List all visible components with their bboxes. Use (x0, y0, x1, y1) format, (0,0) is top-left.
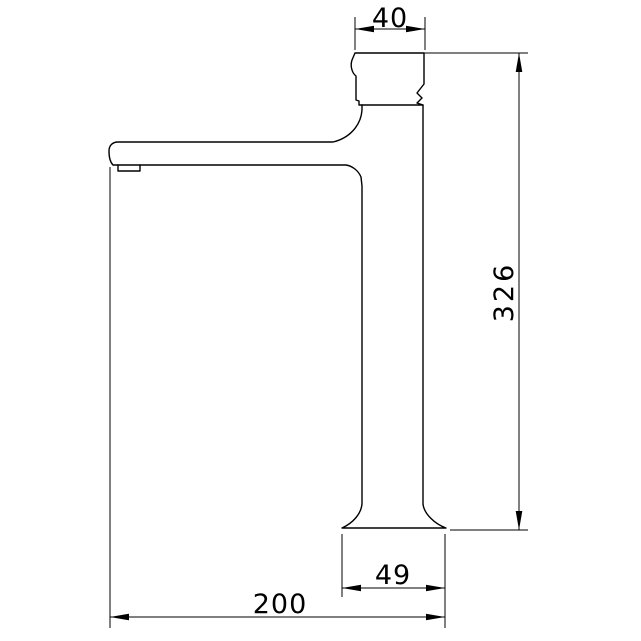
dim-label-base-width: 49 (375, 560, 411, 591)
dimension-overall-height: 326 (424, 53, 528, 530)
arrowhead-down (516, 511, 523, 530)
arrowhead-right (406, 26, 425, 33)
arrowhead-left (110, 614, 129, 621)
faucet-cap-outline (351, 53, 424, 105)
aerator-outline (118, 165, 140, 171)
arrowhead-right (426, 614, 445, 621)
dim-label-top-width: 40 (372, 3, 408, 34)
dim-label-overall-height: 326 (489, 262, 520, 323)
faucet-dimension-drawing: 40 326 49 200 (0, 0, 641, 641)
dim-label-spout-reach: 200 (253, 589, 308, 620)
drawing-canvas: 40 326 49 200 (0, 0, 641, 641)
dimension-top-width: 40 (355, 3, 425, 50)
dimension-spout-reach: 200 (110, 167, 445, 628)
arrowhead-up (516, 53, 523, 72)
arrowhead-left (342, 585, 361, 592)
faucet-body-outline (109, 105, 446, 528)
arrowhead-right (426, 585, 445, 592)
dimension-base-width: 49 (342, 534, 445, 628)
faucet-outline (109, 53, 446, 528)
